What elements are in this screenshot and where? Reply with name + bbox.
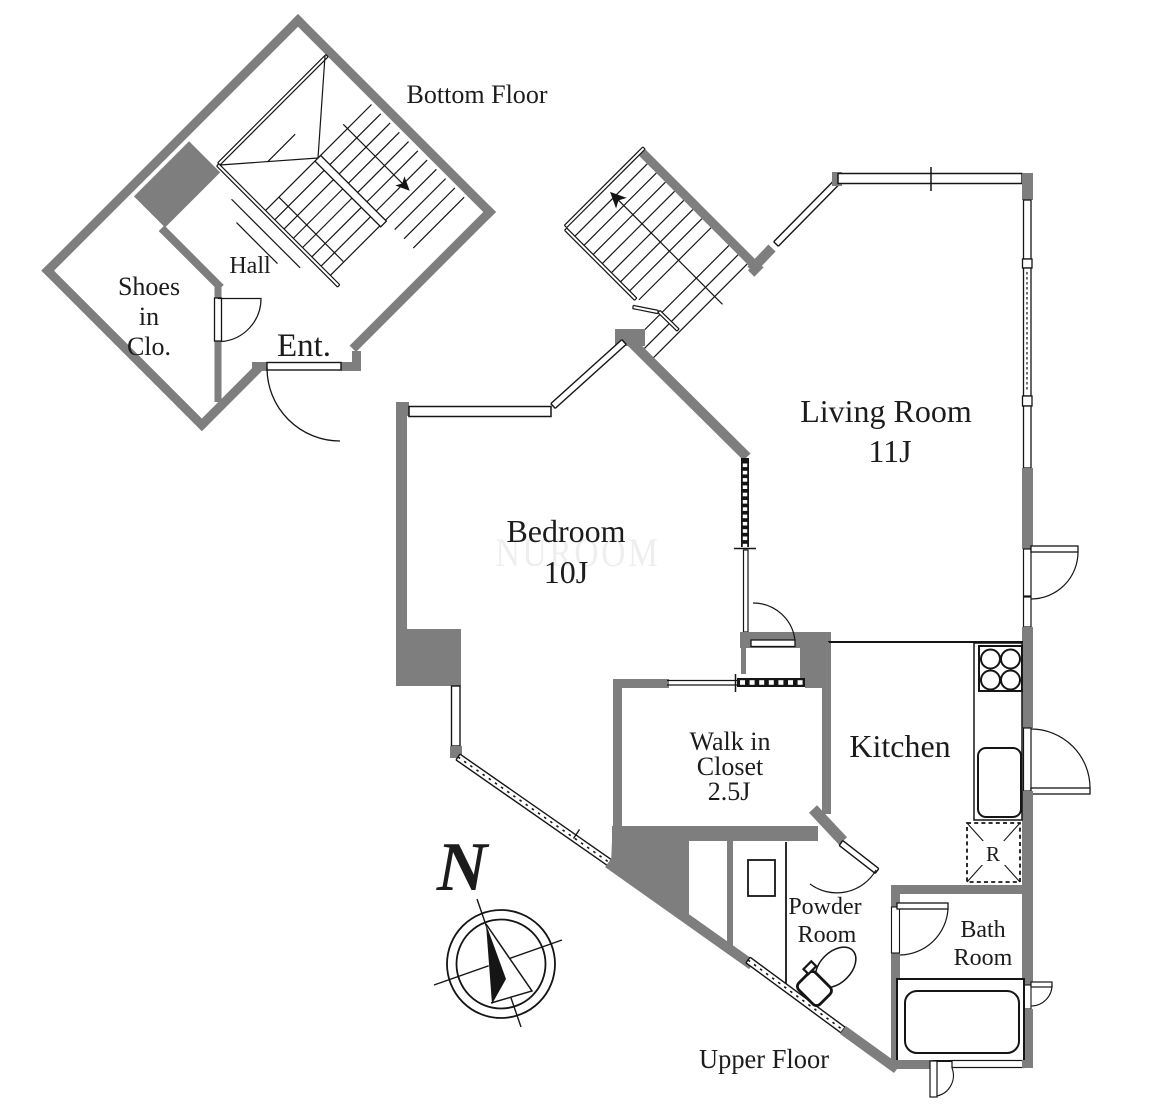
svg-text:Bath: Bath bbox=[960, 917, 1005, 943]
svg-text:N: N bbox=[436, 829, 490, 906]
svg-text:11J: 11J bbox=[868, 433, 911, 469]
svg-text:Upper Floor: Upper Floor bbox=[699, 1044, 829, 1074]
svg-text:Room: Room bbox=[798, 922, 857, 948]
svg-text:Room: Room bbox=[954, 945, 1013, 971]
svg-text:R: R bbox=[986, 842, 1000, 866]
svg-text:Living Room: Living Room bbox=[800, 393, 972, 429]
svg-text:in: in bbox=[139, 302, 159, 331]
svg-text:2.5J: 2.5J bbox=[708, 777, 751, 806]
svg-text:Shoes: Shoes bbox=[118, 272, 180, 301]
svg-text:Clo.: Clo. bbox=[127, 332, 171, 361]
svg-text:10J: 10J bbox=[544, 554, 588, 590]
svg-text:Hall: Hall bbox=[229, 253, 271, 279]
svg-text:Ent.: Ent. bbox=[277, 328, 331, 364]
svg-text:Bedroom: Bedroom bbox=[506, 513, 625, 549]
svg-text:Powder: Powder bbox=[788, 894, 861, 920]
svg-text:Kitchen: Kitchen bbox=[849, 728, 950, 764]
svg-text:Bottom Floor: Bottom Floor bbox=[407, 80, 548, 109]
